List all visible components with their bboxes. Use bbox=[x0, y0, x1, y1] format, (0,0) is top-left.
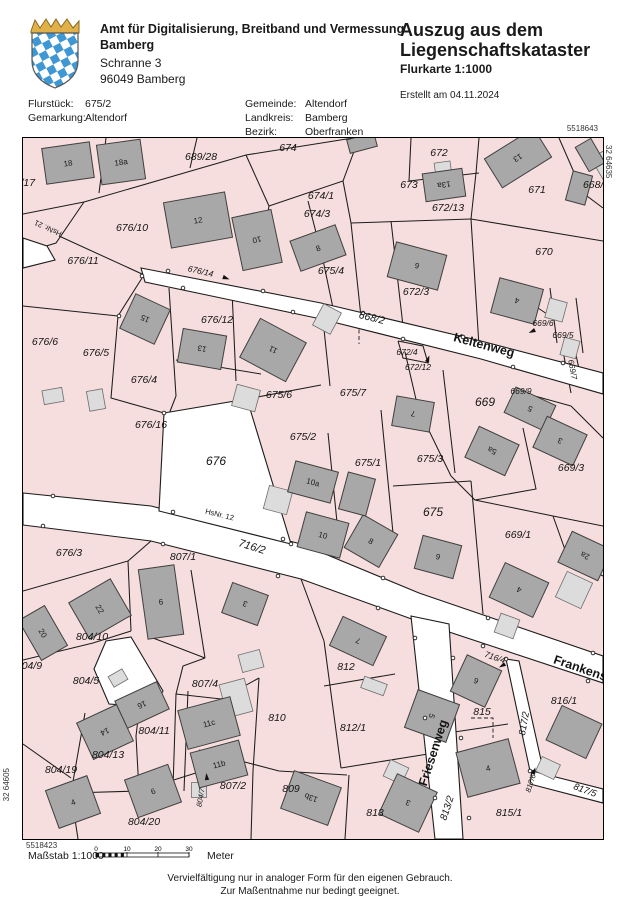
parcel-number-label: 675/6 bbox=[266, 389, 292, 401]
parcel-number-label: 809 bbox=[282, 783, 300, 795]
parcel-number-label: 675/7 bbox=[340, 387, 367, 399]
survey-point bbox=[281, 537, 285, 541]
survey-point bbox=[162, 411, 166, 415]
parcel-number-label: 672 bbox=[430, 147, 448, 159]
scale-bar-part bbox=[121, 853, 124, 857]
parcel-number-label: 669/1 bbox=[505, 529, 531, 541]
parcel-number-label: 674/1 bbox=[308, 190, 334, 202]
survey-point bbox=[486, 616, 490, 620]
parcel-number-label: 804/19 bbox=[45, 764, 77, 776]
parcel-number-label: 813 bbox=[366, 807, 384, 819]
parcel-number-label: 689/28 bbox=[185, 151, 217, 163]
meta-landkreis-value: Bamberg bbox=[305, 112, 348, 124]
meta-landkreis-label: Landkreis: bbox=[245, 112, 293, 124]
building: 7 bbox=[392, 396, 435, 432]
parcel-number-label: 815 bbox=[473, 706, 491, 718]
building: 18 bbox=[42, 142, 95, 184]
parcel-number-label: 816/1 bbox=[551, 695, 577, 707]
agency-street: Schranne 3 bbox=[100, 56, 161, 70]
parcel-number-label: 675/4 bbox=[318, 265, 344, 277]
survey-point bbox=[41, 524, 45, 528]
grid-coordinate-right-edge: 32 64635 bbox=[604, 145, 613, 178]
survey-point bbox=[161, 542, 165, 546]
parcel-number-label: 676/3 bbox=[56, 547, 82, 559]
disclaimer-line2: Zur Maßentnahme nur bedingt geeignet. bbox=[130, 886, 490, 897]
parcel-number-label: 669/9 bbox=[510, 386, 532, 396]
parcel-number-label: 676/11 bbox=[67, 255, 98, 267]
parcel-number-label: 672/3 bbox=[403, 286, 429, 298]
building: 18a bbox=[96, 139, 145, 185]
parcel-number-label: 804/13 bbox=[92, 749, 124, 761]
grid-coordinate-left-edge: 32 64605 bbox=[2, 768, 11, 801]
disclaimer-line1: Vervielfältigung nur in analoger Form fü… bbox=[130, 873, 490, 884]
cadastral-map: 1818a121313a86104151311755a310a10862a422… bbox=[22, 137, 604, 840]
parcel-number-label: 810 bbox=[268, 712, 286, 724]
survey-point bbox=[451, 656, 455, 660]
scale-bar-part bbox=[108, 853, 111, 857]
doc-title-line1: Auszug aus dem bbox=[400, 20, 543, 41]
parcel-number-label: 812/1 bbox=[340, 722, 366, 734]
survey-point bbox=[171, 510, 175, 514]
parcel-number-label: 807/1 bbox=[170, 551, 196, 563]
parcel-number-label: 669 bbox=[475, 395, 495, 409]
survey-point bbox=[166, 269, 170, 273]
building: 13 bbox=[177, 328, 226, 369]
building: 13a bbox=[422, 168, 466, 201]
parcel-number-label: 675/3 bbox=[417, 453, 443, 465]
parcel-number-label: 675 bbox=[423, 505, 443, 519]
survey-point bbox=[433, 796, 437, 800]
survey-point bbox=[261, 289, 265, 293]
meta-gemeinde-label: Gemeinde: bbox=[245, 98, 296, 110]
scale-bar-part bbox=[96, 853, 99, 857]
doc-subtitle: Flurkarte 1:1000 bbox=[400, 62, 492, 76]
meta-flurstueck-label: Flurstück: bbox=[28, 98, 74, 110]
scale-bar-part bbox=[115, 853, 118, 857]
parcel-number-label: 689/17 bbox=[23, 177, 36, 189]
parcel-number-label: 815/1 bbox=[496, 807, 522, 819]
cadastral-map-canvas: 1818a121313a86104151311755a310a10862a422… bbox=[23, 138, 603, 839]
parcel-number-label: 676/10 bbox=[116, 222, 148, 234]
survey-point bbox=[413, 636, 417, 640]
survey-point bbox=[459, 736, 463, 740]
doc-title-line2: Liegenschaftskataster bbox=[400, 40, 590, 61]
parcel-number-label: 672/12 bbox=[405, 362, 431, 372]
meta-flurstueck-value: 675/2 bbox=[85, 98, 111, 110]
parcel-number-label: 676/5 bbox=[83, 347, 109, 359]
scale-bar-part bbox=[102, 853, 105, 857]
parcel-number-label: 804/9 bbox=[23, 660, 42, 672]
survey-point bbox=[376, 606, 380, 610]
parcel-number-label: 674 bbox=[279, 142, 297, 154]
survey-point bbox=[401, 337, 405, 341]
parcel-number-label: 675/1 bbox=[355, 457, 381, 469]
parcel-number-label: 807/4 bbox=[192, 678, 218, 690]
parcel-number-label: 669/6 bbox=[532, 318, 554, 328]
survey-point bbox=[423, 716, 427, 720]
parcel-number-label: 672/4 bbox=[396, 347, 418, 357]
survey-point bbox=[117, 314, 121, 318]
parcel-number-label: 804/20 bbox=[128, 816, 160, 828]
agency-name-line1: Amt für Digitalisierung, Breitband und V… bbox=[100, 22, 404, 36]
parcel-number-label: 676/4 bbox=[131, 374, 157, 386]
survey-point bbox=[561, 361, 565, 365]
grid-coordinate-bottom-left: 5518423 bbox=[26, 841, 57, 850]
survey-point bbox=[181, 286, 185, 290]
meta-gemarkung-label: Gemarkung: bbox=[28, 112, 86, 124]
parcel-number-label: 669/3 bbox=[558, 462, 584, 474]
scale-tick-20: 20 bbox=[154, 846, 162, 853]
scale-bar: 0 10 20 30 bbox=[93, 844, 205, 862]
survey-point bbox=[381, 576, 385, 580]
survey-point bbox=[276, 574, 280, 578]
scale-tick-10: 10 bbox=[123, 846, 131, 853]
bavaria-coat-of-arms bbox=[27, 15, 83, 91]
survey-point bbox=[481, 644, 485, 648]
parcel-number-label: 674/3 bbox=[304, 208, 330, 220]
annex-building bbox=[42, 387, 64, 404]
scale-tick-0: 0 bbox=[94, 846, 98, 853]
parcel-number-label: 670 bbox=[535, 246, 553, 258]
survey-point bbox=[467, 816, 471, 820]
scale-unit: Meter bbox=[207, 850, 234, 862]
created-date: Erstellt am 04.11.2024 bbox=[400, 90, 499, 101]
parcel-number-label: 675/2 bbox=[290, 431, 316, 443]
survey-point bbox=[591, 651, 595, 655]
agency-city: 96049 Bamberg bbox=[100, 72, 185, 86]
parcel-number-label: 676 bbox=[206, 454, 226, 468]
parcel-number-label: 812 bbox=[337, 661, 355, 673]
meta-gemarkung-value: Altendorf bbox=[85, 112, 127, 124]
grid-coordinate-top-right: 5518643 bbox=[567, 124, 598, 133]
meta-gemeinde-value: Altendorf bbox=[305, 98, 347, 110]
survey-point bbox=[289, 542, 293, 546]
parcel-number-label: 673 bbox=[400, 179, 418, 191]
survey-point bbox=[511, 365, 515, 369]
parcel-number-label: 671 bbox=[528, 184, 546, 196]
house-number-label: 18a bbox=[114, 157, 129, 168]
parcel-number-label: 676/6 bbox=[32, 336, 58, 348]
annex-building bbox=[86, 389, 105, 411]
house-number-label: 13a bbox=[436, 179, 451, 190]
parcel-number-label: 804/5 bbox=[73, 675, 99, 687]
parcel-number-label: 676/16 bbox=[135, 419, 167, 431]
parcel-number-label: 807/2 bbox=[220, 780, 246, 792]
parcel-number-label: 669/5 bbox=[552, 330, 574, 340]
parcel-number-label: 668/19 bbox=[583, 179, 603, 191]
survey-point bbox=[291, 310, 295, 314]
survey-point bbox=[140, 274, 144, 278]
parcel-number-label: 676/12 bbox=[201, 314, 233, 326]
parcel-number-label: 804/11 bbox=[138, 725, 169, 737]
cadastral-extract-page: { "header": { "agency_line1": "Amt für D… bbox=[0, 0, 624, 921]
house-number-label: 18 bbox=[63, 158, 74, 168]
survey-point bbox=[586, 679, 590, 683]
survey-point bbox=[528, 769, 532, 773]
coat-of-arms-graphic bbox=[27, 15, 83, 91]
agency-name-line2: Bamberg bbox=[100, 38, 154, 52]
parcel-number-label: 804/10 bbox=[76, 631, 108, 643]
survey-point bbox=[51, 494, 55, 498]
parcel-number-label: 672/13 bbox=[432, 202, 464, 214]
scale-tick-30: 30 bbox=[185, 846, 193, 853]
